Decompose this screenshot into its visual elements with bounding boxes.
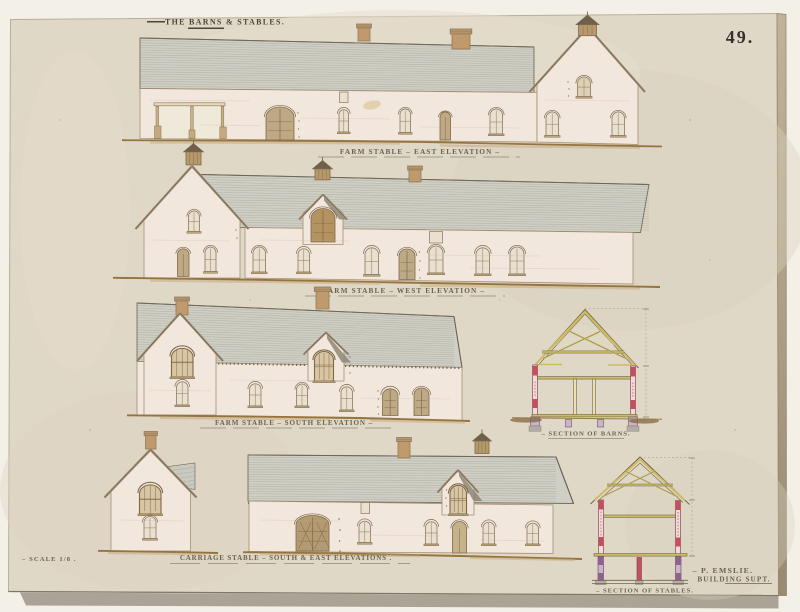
svg-text:– SECTION OF STABLES.: – SECTION OF STABLES. xyxy=(595,588,694,595)
svg-text:FARM STABLE – WEST ELEVATION: FARM STABLE – WEST ELEVATION – xyxy=(323,286,485,295)
svg-text:FARM STABLE – EAST ELEVATION: FARM STABLE – EAST ELEVATION – xyxy=(340,147,500,156)
svg-text:– P. EMSLIE.: – P. EMSLIE. xyxy=(692,566,753,575)
svg-text:49.: 49. xyxy=(726,27,755,47)
svg-text:– SCALE 1/8 .: – SCALE 1/8 . xyxy=(21,556,77,563)
svg-text:BUILDING SUPT.: BUILDING SUPT. xyxy=(697,576,770,584)
svg-text:THE BARNS & STABLES.: THE BARNS & STABLES. xyxy=(165,18,285,27)
svg-text:FARM STABLE – SOUTH ELEVATIO: FARM STABLE – SOUTH ELEVATION – xyxy=(215,419,373,427)
svg-text:– SECTION OF BARNS.: – SECTION OF BARNS. xyxy=(541,431,631,438)
svg-text:CARRIAGE STABLE – SOUTH & EAST: CARRIAGE STABLE – SOUTH & EAST ELEVATION… xyxy=(180,554,392,562)
